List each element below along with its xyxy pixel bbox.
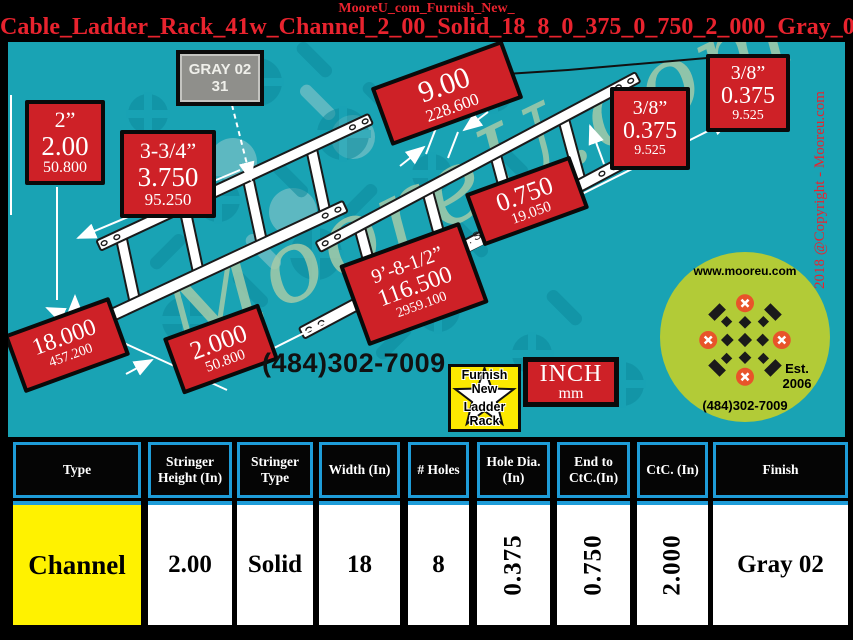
logo-est-year: 2006 bbox=[772, 377, 822, 392]
dim-fraction: 2” bbox=[29, 109, 101, 132]
dim-inches: 0.375 bbox=[614, 119, 686, 144]
td-type: Channel bbox=[13, 501, 141, 625]
phone-number: (484)302-7009 bbox=[262, 348, 446, 379]
logo-est-label: Est. bbox=[772, 362, 822, 377]
copyright-text: 2018 @Copyright - Mooreu.com bbox=[812, 42, 842, 340]
td-hole-dia: 0.375 bbox=[477, 501, 550, 625]
th-stringer-type: Stringer Type bbox=[237, 442, 313, 498]
dim-inches: 2.00 bbox=[29, 132, 101, 160]
dim-mm: 9.525 bbox=[710, 109, 786, 124]
th-finish: Finish bbox=[713, 442, 848, 498]
dim-hole-diameter: 3/8” 0.375 9.525 bbox=[610, 87, 690, 170]
dim-inches: 0.375 bbox=[710, 84, 786, 109]
td-end-to-ctc-value: 0.750 bbox=[580, 534, 608, 595]
units-primary: INCH bbox=[528, 362, 614, 386]
badge-line: Ladder bbox=[451, 400, 518, 414]
badge-line: Rack bbox=[451, 414, 518, 428]
td-end-to-ctc: 0.750 bbox=[557, 501, 630, 625]
th-ctc: CtC. (In) bbox=[637, 442, 708, 498]
units-secondary: mm bbox=[528, 386, 614, 402]
th-width: Width (In) bbox=[319, 442, 400, 498]
td-hole-dia-value: 0.375 bbox=[500, 534, 528, 595]
color-swatch-label: GRAY 02 31 bbox=[176, 50, 264, 106]
units-box: INCH mm bbox=[523, 357, 619, 407]
furnish-new-badge: Furnish New Ladder Rack bbox=[448, 364, 521, 432]
dim-stringer-height: 2” 2.00 50.800 bbox=[25, 100, 105, 185]
badge-line: New bbox=[451, 382, 518, 396]
th-stringer-height: Stringer Height (In) bbox=[148, 442, 232, 498]
dim-fraction: 3-3/4” bbox=[124, 140, 212, 163]
dim-rung-offset: 3-3/4” 3.750 95.250 bbox=[120, 130, 216, 218]
td-finish: Gray 02 bbox=[713, 501, 848, 625]
logo-established: Est. 2006 bbox=[772, 362, 822, 392]
td-ctc: 2.000 bbox=[637, 501, 708, 625]
dim-mm: 9.525 bbox=[614, 144, 686, 159]
swatch-name: GRAY 02 bbox=[180, 61, 260, 78]
dim-mm: 50.800 bbox=[29, 160, 101, 177]
page-title: Cable_Ladder_Rack_41w_Channel_2_00_Solid… bbox=[0, 14, 853, 41]
badge-line: Furnish bbox=[451, 368, 518, 382]
swatch-code: 31 bbox=[180, 78, 260, 95]
th-hole-dia: Hole Dia. (In) bbox=[477, 442, 550, 498]
th-type: Type bbox=[13, 442, 141, 498]
td-stringer-height: 2.00 bbox=[148, 501, 232, 625]
product-spec-image: MooreU_com_Furnish_New_ Cable_Ladder_Rac… bbox=[0, 0, 853, 640]
dim-fraction: 3/8” bbox=[710, 63, 786, 84]
dim-hole-diameter-top: 3/8” 0.375 9.525 bbox=[706, 54, 790, 132]
th-holes: # Holes bbox=[408, 442, 469, 498]
th-end-to-ctc: End to CtC.(In) bbox=[557, 442, 630, 498]
dim-fraction: 3/8” bbox=[614, 98, 686, 119]
td-holes: 8 bbox=[408, 501, 469, 625]
td-ctc-value: 2.000 bbox=[659, 534, 687, 595]
dim-inches: 3.750 bbox=[124, 163, 212, 191]
drawing-panel: MooreU.com bbox=[8, 42, 845, 437]
td-stringer-type: Solid bbox=[237, 501, 313, 625]
logo-website: www.mooreu.com bbox=[660, 264, 830, 278]
company-logo: www.mooreu.com bbox=[660, 252, 830, 422]
td-width: 18 bbox=[319, 501, 400, 625]
dim-mm: 95.250 bbox=[124, 191, 212, 209]
logo-phone: (484)302-7009 bbox=[660, 398, 830, 413]
spec-table: Type Stringer Height (In) Stringer Type … bbox=[0, 437, 853, 640]
